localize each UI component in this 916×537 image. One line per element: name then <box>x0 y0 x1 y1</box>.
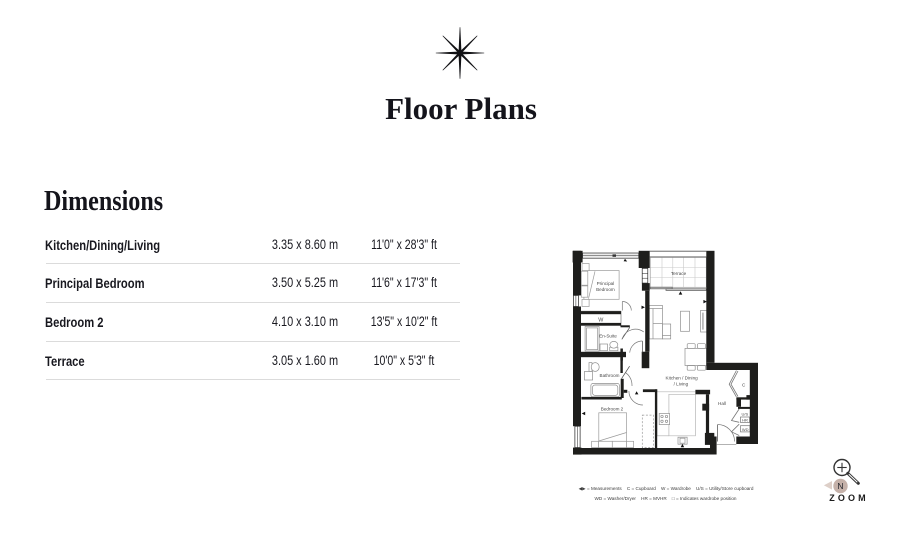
svg-text:◀▶ = Measurements C = Cupbo: ◀▶ = Measurements C = Cupboard W = Wardr… <box>579 486 754 491</box>
svg-text:Bedroom 2: Bedroom 2 <box>601 407 624 412</box>
svg-text:U/S: U/S <box>741 411 748 416</box>
svg-text:ZOOM: ZOOM <box>829 493 868 503</box>
svg-text:Bedroom: Bedroom <box>596 287 615 292</box>
svg-text:Principal: Principal <box>597 281 615 286</box>
svg-text:/ Living: / Living <box>674 382 689 387</box>
svg-text:Bathroom: Bathroom <box>600 373 620 378</box>
svg-text:C: C <box>742 382 746 387</box>
svg-text:Kitchen / Dining: Kitchen / Dining <box>666 375 699 380</box>
svg-text:WD = Washer/Dryer HR = MVHR: WD = Washer/Dryer HR = MVHR □ = Indicate… <box>594 496 736 501</box>
svg-text:En-Suite: En-Suite <box>599 333 617 338</box>
svg-text:N: N <box>837 481 843 491</box>
svg-text:Terrace: Terrace <box>671 271 687 276</box>
svg-text:Hall: Hall <box>718 401 726 406</box>
svg-text:HR: HR <box>742 418 748 423</box>
svg-text:W: W <box>598 318 604 324</box>
svg-text:WD: WD <box>742 427 749 432</box>
